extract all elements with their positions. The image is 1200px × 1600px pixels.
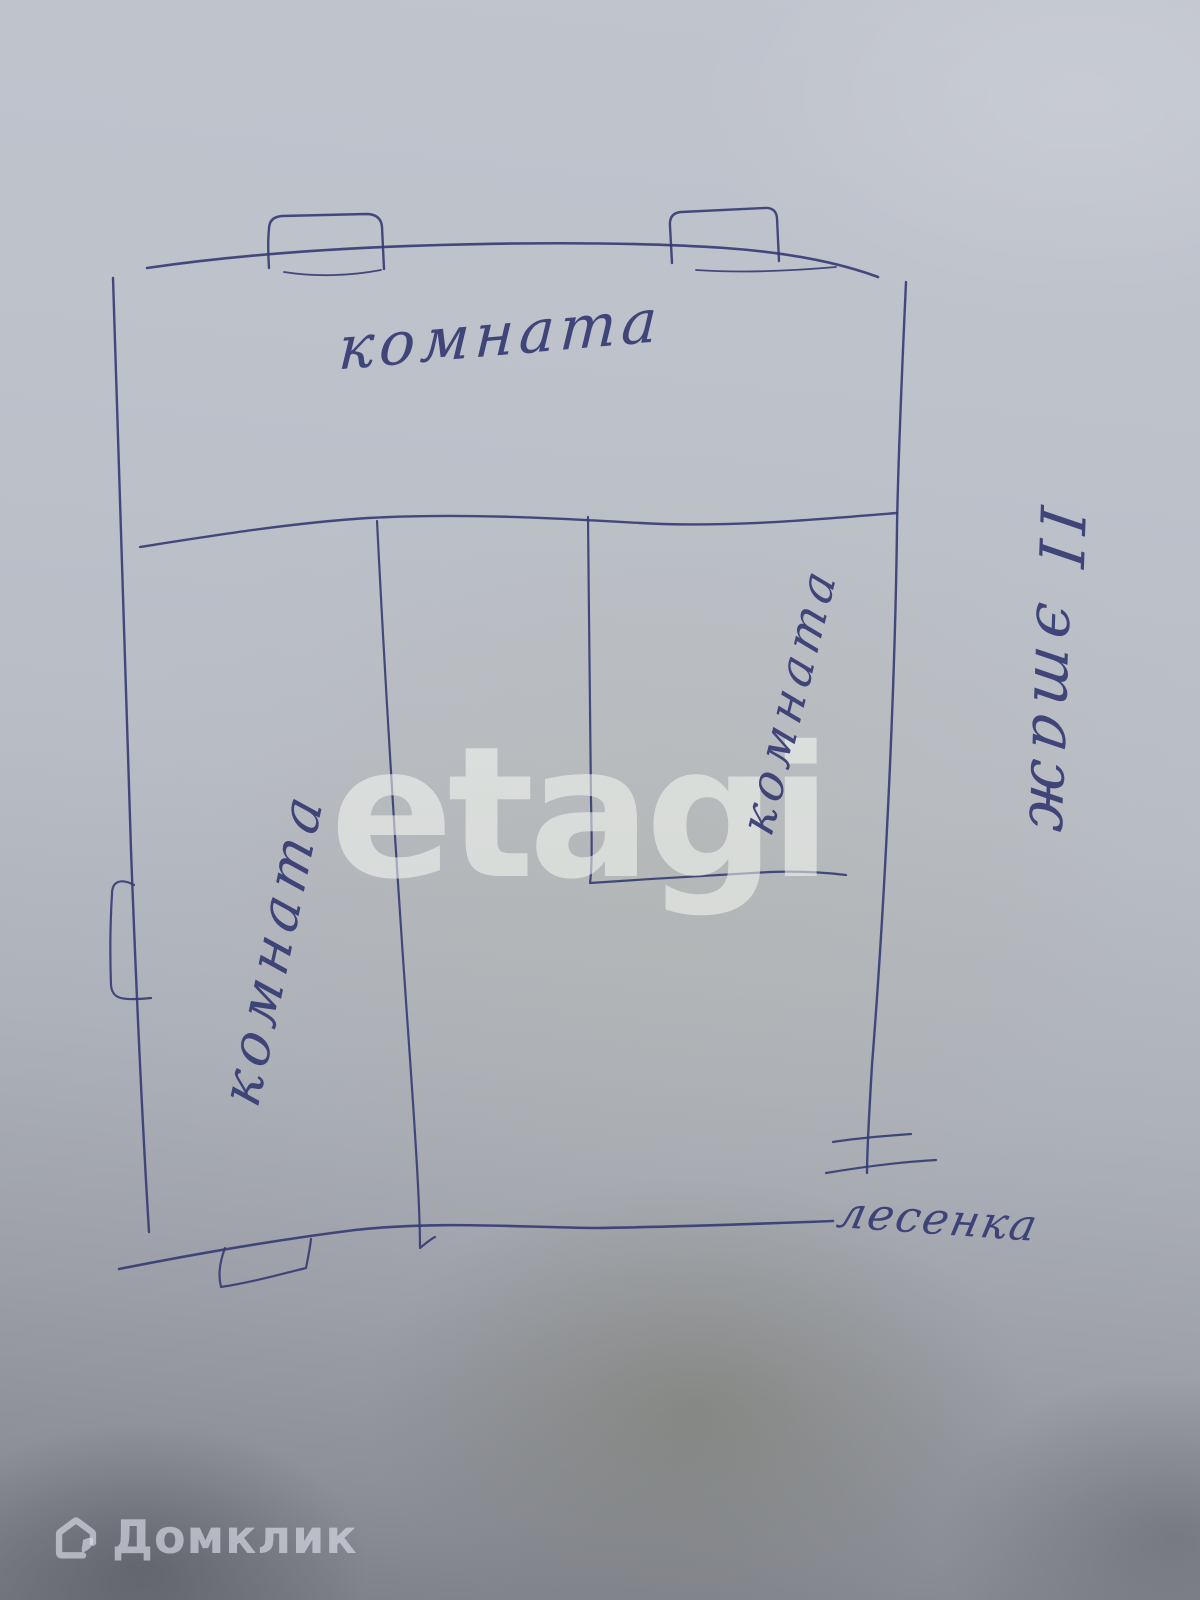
stairs-tick-lower (826, 1160, 936, 1173)
domclick-logo: Домклик (52, 1514, 358, 1560)
bottom-wall (119, 1221, 833, 1269)
window-icon-left (268, 214, 384, 269)
window-right-sill-line (696, 267, 836, 271)
floor-number-label: II этаж (997, 477, 1100, 869)
interior-wall-horizontal (140, 513, 897, 547)
window-left-sill-line (284, 270, 381, 275)
stairs-tick-upper (833, 1134, 911, 1142)
left-wall (113, 278, 149, 1232)
bottom-door-icon (220, 1239, 311, 1287)
domclick-logo-text: Домклик (112, 1514, 358, 1560)
left-wall-opening-icon (110, 881, 151, 999)
right-wall (867, 282, 906, 1173)
window-icon-right (670, 208, 779, 263)
domclick-house-icon (52, 1514, 100, 1560)
floor-plan-photo: etagi комната комната комната II этаж ле… (0, 0, 1200, 1600)
